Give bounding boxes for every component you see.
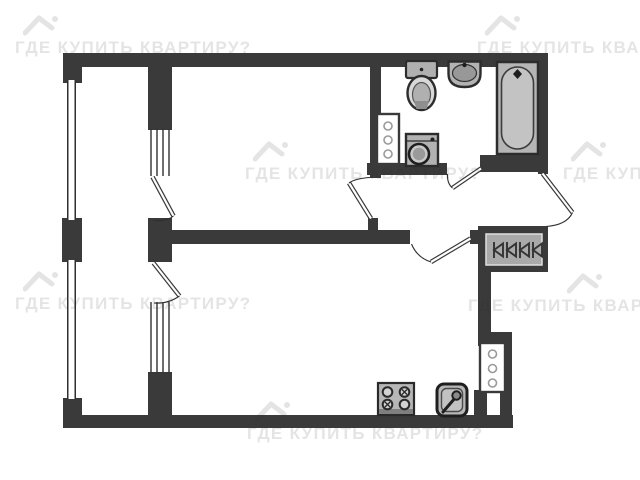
door-entrance — [543, 174, 573, 227]
door-room — [349, 178, 371, 219]
door-balcony-lower — [154, 263, 180, 303]
wall-kitchen-right-upper — [478, 262, 491, 342]
stove — [378, 383, 414, 415]
washing-machine — [406, 134, 438, 166]
floor-plan — [0, 0, 640, 480]
walls — [62, 53, 548, 428]
wall-left-pier — [62, 218, 82, 262]
wall-loggia-lower — [148, 372, 172, 428]
wall-door-stub — [368, 218, 378, 244]
wall-top-left-block — [63, 53, 82, 83]
wardrobe — [486, 234, 542, 265]
wall-loggia-upper — [148, 53, 172, 130]
wall-bathroom-bottom-right — [480, 155, 548, 172]
window-loggia-lower — [151, 302, 169, 373]
door-balcony-upper — [153, 177, 174, 221]
toilet — [406, 61, 437, 110]
door-bathroom — [447, 169, 481, 189]
ventilation-shaft-kitchen — [480, 343, 505, 392]
wall-kitchen-stub — [474, 390, 487, 428]
bathroom-sink — [449, 62, 481, 88]
door-kitchen — [412, 239, 471, 263]
bathtub — [497, 62, 538, 154]
window-loggia-upper — [151, 129, 169, 176]
ventilation-shaft-bathroom — [377, 114, 399, 164]
kitchen-sink — [437, 384, 467, 416]
floor-plan-page: ГДЕ КУПИТЬ КВАРТИРУ? ГДЕ КУПИТЬ КВАРТИРУ… — [0, 0, 640, 480]
